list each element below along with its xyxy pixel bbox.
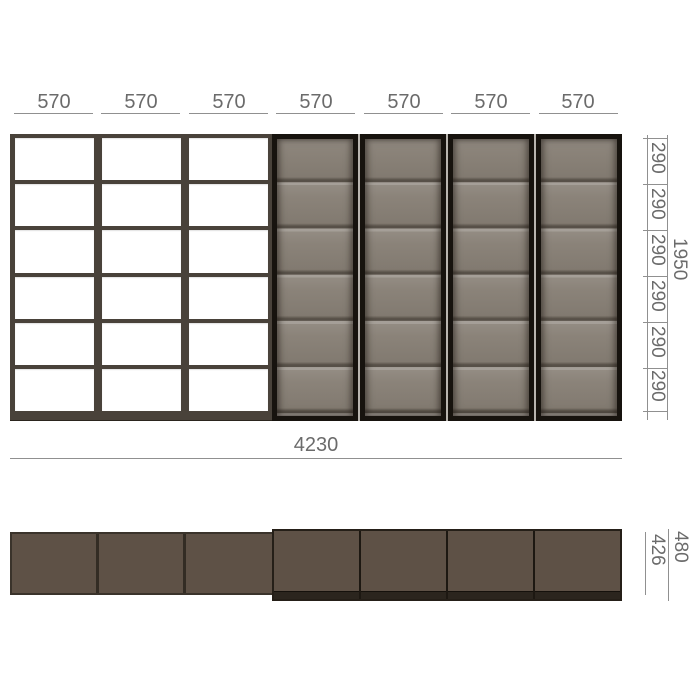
dim-label-shelf-height-2: 290 <box>648 188 667 220</box>
glass-panel <box>453 139 529 416</box>
dim-tick <box>643 368 668 369</box>
glass-panel <box>365 139 441 416</box>
dim-label-shelf-height-4: 290 <box>648 280 667 312</box>
shelf-compartment <box>189 230 268 272</box>
dim-label-module-width-7: 570 <box>538 92 618 112</box>
shelf-compartment <box>189 184 268 226</box>
dim-line <box>14 113 93 114</box>
dim-line <box>668 529 669 601</box>
glass-door <box>448 134 534 421</box>
dim-label-shelf-height-6: 290 <box>648 370 667 402</box>
dim-label-module-width-2: 570 <box>101 92 181 112</box>
dim-line <box>189 113 268 114</box>
dim-label-module-width-3: 570 <box>189 92 269 112</box>
shelf-compartment <box>102 230 181 272</box>
dim-tick <box>643 322 668 323</box>
dim-label-shelf-height-5: 290 <box>648 326 667 358</box>
furniture-technical-drawing: 570 570 570 570 570 570 570 <box>0 0 700 700</box>
module-divider <box>533 531 535 599</box>
front-view-glass-door-section <box>272 134 622 421</box>
shelf-compartment <box>15 369 94 411</box>
shelf-compartment <box>15 230 94 272</box>
dim-tick <box>643 411 668 412</box>
shelf-compartment <box>15 277 94 319</box>
front-view-open-shelf-section <box>10 134 273 420</box>
shelf-compartment <box>15 323 94 365</box>
dim-line <box>645 532 646 595</box>
shelf-compartment <box>15 184 94 226</box>
shelf-compartment <box>102 323 181 365</box>
dim-tick <box>643 184 668 185</box>
dim-line <box>10 458 622 459</box>
top-view-open-shelf-section <box>10 532 273 595</box>
dim-label-shelf-height-1: 290 <box>648 142 667 174</box>
dim-label-overall-height: 1950 <box>670 238 689 280</box>
shelf-compartment <box>189 277 268 319</box>
dim-label-module-width-6: 570 <box>451 92 531 112</box>
shelf-compartment <box>189 323 268 365</box>
dim-line <box>276 113 355 114</box>
shelf-compartment <box>189 138 268 180</box>
dim-tick <box>643 230 668 231</box>
glass-door <box>360 134 446 421</box>
module-divider <box>359 531 361 599</box>
glass-panel <box>541 139 617 416</box>
top-view-glass-door-section <box>272 529 622 601</box>
dim-label-shelf-height-3: 290 <box>648 234 667 266</box>
dim-label-overall-width: 4230 <box>276 435 356 455</box>
module-divider <box>96 534 99 593</box>
dim-line <box>451 113 530 114</box>
dim-label-open-depth: 426 <box>648 534 667 566</box>
glass-door <box>272 134 358 421</box>
dim-label-module-width-1: 570 <box>14 92 94 112</box>
dim-line <box>364 113 443 114</box>
dim-tick <box>643 276 668 277</box>
module-divider <box>446 531 448 599</box>
module-divider <box>183 534 186 593</box>
dim-line <box>539 113 618 114</box>
shelf-compartment <box>102 138 181 180</box>
dim-line <box>101 113 180 114</box>
dim-label-module-width-5: 570 <box>364 92 444 112</box>
shelf-compartment <box>189 369 268 411</box>
glass-panel <box>277 139 353 416</box>
dim-label-module-width-4: 570 <box>276 92 356 112</box>
shelf-compartment <box>102 369 181 411</box>
dim-label-overall-depth: 480 <box>671 531 690 563</box>
glass-door <box>536 134 622 421</box>
shelf-compartment <box>15 138 94 180</box>
shelf-compartment <box>102 184 181 226</box>
dim-tick <box>643 138 668 139</box>
shelf-compartment <box>102 277 181 319</box>
